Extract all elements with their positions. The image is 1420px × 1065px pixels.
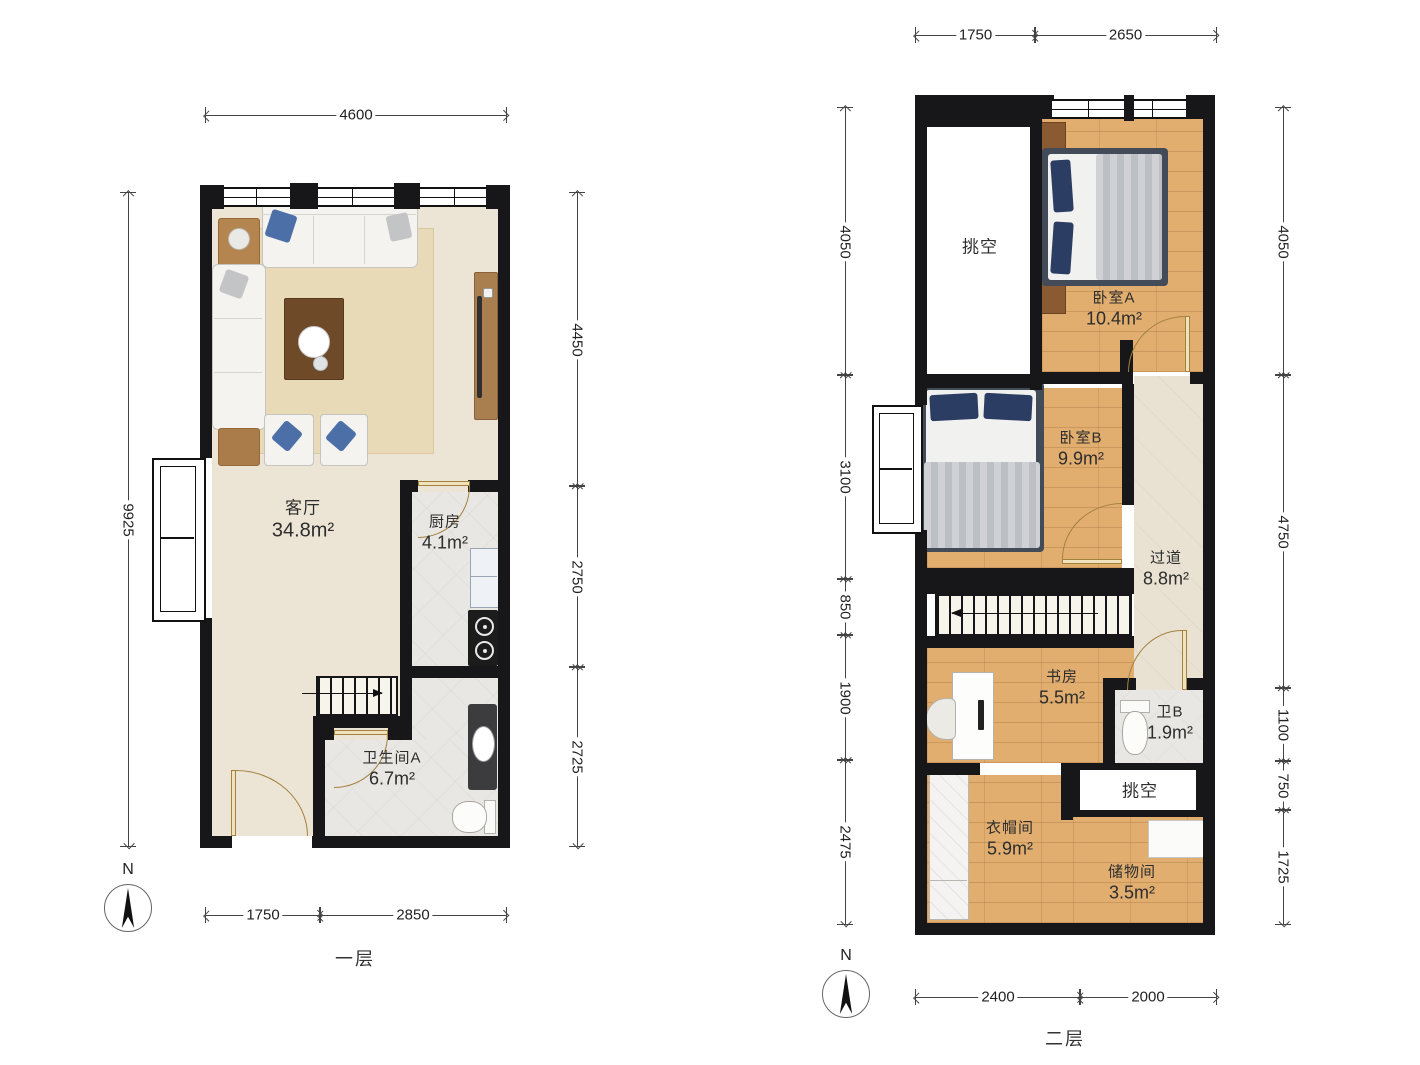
wall-bathA-top-stub-right (388, 728, 412, 740)
desk-chair (926, 698, 956, 740)
wall-bathB-top-stub-right (1186, 678, 1203, 690)
dim-f1-top: 4600 (205, 107, 507, 123)
dim-value: 1725 (1275, 847, 1292, 886)
dim-f1-bottom-1: 1750 (205, 907, 321, 923)
dim-value: 2000 (1128, 989, 1167, 1006)
wall-bedroomB-bottom (927, 568, 1134, 594)
wardrobe-divider (929, 880, 967, 881)
window-mullion (1088, 99, 1089, 119)
dim-value: 2750 (569, 557, 586, 596)
dim-value: 2400 (978, 989, 1017, 1006)
corridor-name: 过道 (1143, 547, 1189, 568)
dim-value: 2850 (393, 907, 432, 924)
wall-stairs-bottom (927, 636, 1134, 648)
window-pillar (394, 183, 420, 209)
dim-value: 4050 (837, 222, 854, 261)
dim-f2-right-5: 1725 (1275, 809, 1291, 925)
dim-f1-bottom-2: 2850 (319, 907, 507, 923)
dim-value: 4050 (1275, 222, 1292, 261)
dim-f2-left-2: 3100 (837, 374, 853, 580)
wall-bathB-left (1103, 678, 1115, 763)
study-name: 书房 (1039, 666, 1085, 687)
tv-speaker (483, 288, 493, 298)
dim-f2-left-1: 4050 (837, 107, 853, 376)
cloakroom-name: 衣帽间 (986, 817, 1034, 838)
stairs-direction-arrow-f1 (302, 693, 382, 694)
bedB-blanket (924, 462, 1040, 548)
burner-1 (475, 617, 494, 636)
wall-right-f2 (1203, 95, 1215, 935)
dim-f2-right-1: 4050 (1275, 107, 1291, 376)
bedroomA-area: 10.4m² (1086, 309, 1142, 330)
bay-window-f1-inner (160, 466, 196, 612)
wall-top-void (915, 95, 1040, 127)
kitchen-name: 厨房 (422, 511, 468, 532)
bedA-pillow-1 (1050, 159, 1074, 212)
label-bathB: 卫B 1.9m² (1147, 701, 1193, 744)
wall-left-upper (200, 185, 212, 458)
floorplan-canvas: 客厅 34.8m² 厨房 4.1m² 卫生间A 6.7m² 4600 9925 … (0, 0, 1420, 1065)
living-room-name: 客厅 (272, 494, 334, 519)
label-living-room: 客厅 34.8m² (272, 494, 334, 543)
kitchen-area: 4.1m² (422, 533, 468, 554)
dim-value: 4450 (569, 320, 586, 359)
dim-value: 4600 (336, 107, 375, 124)
coffee-table-cup (313, 356, 328, 371)
dim-f1-left: 9925 (120, 192, 136, 847)
wall-bathA-left (313, 728, 325, 848)
wall-bottom-left (200, 836, 232, 848)
wall-right (498, 185, 510, 848)
bedB-pillow-2 (983, 393, 1032, 421)
window-mullion (1152, 99, 1153, 119)
coffee-table-plate (298, 326, 330, 358)
bathB-door-leaf (1182, 630, 1187, 690)
bedroomB-name: 卧室B (1058, 427, 1104, 448)
dim-f2-left-5: 2475 (837, 759, 853, 925)
window-pillar-f2 (1124, 95, 1134, 121)
dim-f2-left-4: 1900 (837, 634, 853, 761)
floor1-title: 一层 (335, 945, 375, 971)
bedB-pillow-1 (929, 393, 978, 421)
wall-kitchen-bottom (400, 666, 498, 678)
toiletB-bowl (1122, 711, 1148, 755)
wall-bedroomA-bottom-right (1190, 372, 1203, 384)
bedA-pillow-2 (1050, 221, 1074, 274)
compass-needle-icon (835, 974, 857, 1014)
kitchen-sink-unit (470, 548, 499, 608)
wall-bedroomA-bottom (1042, 372, 1128, 384)
compass-needle-icon (117, 888, 139, 928)
bedroomA-name: 卧室A (1086, 287, 1142, 308)
bay-window-f2-sill (879, 468, 912, 470)
wall-void-bottom (915, 374, 1042, 388)
wall-bottom-right (312, 836, 510, 848)
label-bedroomA: 卧室A 10.4m² (1086, 287, 1142, 330)
wall-left-lower (200, 618, 212, 848)
window-mullion (352, 187, 353, 207)
side-table-bottom (218, 428, 260, 466)
label-void-small: 挑空 (1122, 777, 1158, 802)
storage-name: 储物间 (1108, 861, 1156, 882)
window-mullion (454, 187, 455, 207)
wall-bottom-f2 (915, 923, 1215, 935)
monitor (978, 700, 984, 730)
desk (952, 672, 994, 760)
label-study: 书房 5.5m² (1039, 666, 1085, 709)
dim-value: 1100 (1275, 705, 1292, 743)
wall-bedroomB-right (1122, 384, 1134, 505)
compass-north-label: N (122, 861, 134, 879)
label-cloakroom: 衣帽间 5.9m² (986, 817, 1034, 860)
stairs-floor1 (316, 676, 398, 716)
stairs-direction-arrow-f2 (952, 613, 1098, 614)
dim-value: 1900 (837, 678, 854, 717)
dim-value: 4750 (1275, 512, 1292, 551)
dim-f2-right-4: 750 (1275, 760, 1291, 811)
wardrobe (929, 768, 969, 920)
bedroomB-area: 9.9m² (1058, 449, 1104, 470)
dim-f2-right-3: 1100 (1275, 687, 1291, 762)
dim-f2-bottom-1: 2400 (915, 989, 1081, 1005)
chaise-seam-2 (214, 372, 262, 373)
bedA-blanket (1096, 154, 1162, 280)
dim-value: 3100 (837, 457, 854, 496)
window-pillar (290, 183, 318, 209)
wall-left-lower-f2 (915, 530, 927, 935)
wall-kitchen-left (400, 480, 412, 728)
cloakroom-area: 5.9m² (986, 839, 1034, 860)
wall-cloakroom-top-stub (927, 763, 980, 775)
stairs-floor2 (935, 594, 1132, 636)
void-small-name: 挑空 (1122, 777, 1158, 802)
chaise-seam-1 (214, 318, 262, 319)
storage-cabinet (1148, 820, 1205, 858)
dim-f2-top-2: 2650 (1034, 27, 1217, 43)
dim-f1-right-2: 2750 (569, 485, 585, 668)
compass-f1: N (104, 884, 152, 932)
dim-value: 1750 (956, 27, 995, 44)
label-kitchen: 厨房 4.1m² (422, 511, 468, 554)
dim-value: 2475 (837, 822, 854, 861)
wall-kitchen-top (468, 480, 498, 492)
storage-area: 3.5m² (1108, 883, 1156, 904)
corridor-area: 8.8m² (1143, 569, 1189, 590)
bay-window-f1-sill (160, 537, 194, 539)
wall-under-stairs (313, 716, 412, 728)
dim-f2-right-2: 4750 (1275, 374, 1291, 689)
dim-f1-right-1: 4450 (569, 192, 585, 487)
study-area: 5.5m² (1039, 688, 1085, 709)
dim-value: 850 (837, 591, 854, 622)
dim-value: 1750 (243, 907, 282, 924)
plant-decor (228, 228, 250, 250)
dim-f2-top-1: 1750 (915, 27, 1036, 43)
bathroomA-name: 卫生间A (362, 747, 421, 768)
sofa-seam-2 (364, 216, 365, 264)
burner-2 (475, 641, 494, 660)
wall-cloakroom-right (1061, 763, 1073, 820)
dim-value: 9925 (120, 500, 137, 539)
window-top-f1 (224, 187, 486, 207)
dim-f1-right-3: 2725 (569, 666, 585, 847)
window-top-f2 (1052, 99, 1186, 119)
bathB-area: 1.9m² (1147, 723, 1193, 744)
sofa-seam-1 (313, 216, 314, 264)
living-room-area: 34.8m² (272, 520, 334, 543)
floor2-title: 二层 (1045, 1025, 1085, 1051)
bathB-name: 卫B (1147, 701, 1193, 722)
sink-bowl (472, 726, 495, 762)
bedroomB-door-leaf (1062, 559, 1122, 564)
label-bedroomB: 卧室B 9.9m² (1058, 427, 1104, 470)
sink-unit-divider (470, 576, 497, 577)
toilet-bowl (452, 801, 487, 833)
label-void-top: 挑空 (962, 233, 998, 258)
bedroomA-door-leaf (1185, 316, 1190, 372)
bathroomA-area: 6.7m² (362, 769, 421, 790)
dim-value: 2650 (1106, 27, 1145, 44)
dim-value: 2725 (569, 737, 586, 776)
nightstand-A-bottom (1040, 284, 1066, 314)
tv-screen (477, 296, 482, 398)
wall-left-upper-f2 (915, 95, 927, 405)
wall-void-right (1030, 119, 1042, 390)
dim-f2-bottom-2: 2000 (1079, 989, 1217, 1005)
window-mullion (256, 187, 257, 207)
dim-value: 750 (1275, 770, 1292, 801)
dim-f2-left-3: 850 (837, 578, 853, 636)
label-bathroomA: 卫生间A 6.7m² (362, 747, 421, 790)
void-top-name: 挑空 (962, 233, 998, 258)
compass-north-label: N (840, 947, 852, 965)
label-corridor: 过道 8.8m² (1143, 547, 1189, 590)
compass-f2: N (822, 970, 870, 1018)
label-storage: 储物间 3.5m² (1108, 861, 1156, 904)
